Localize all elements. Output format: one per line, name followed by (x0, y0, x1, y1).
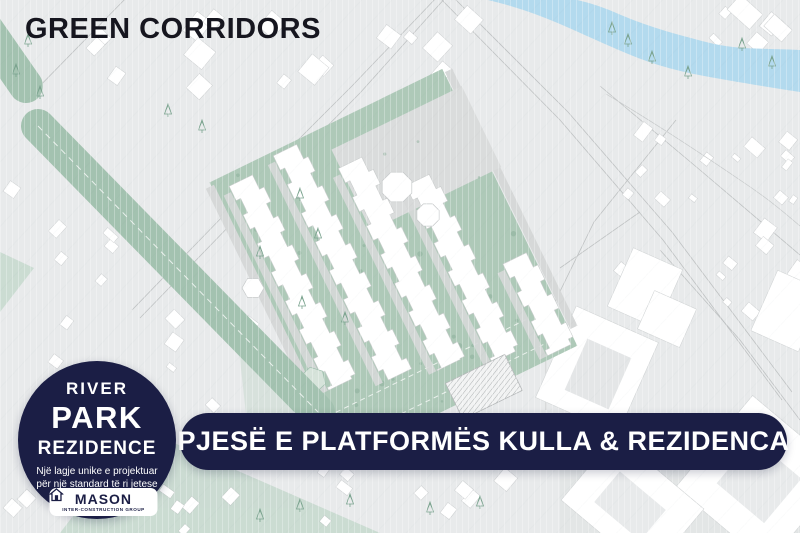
river-park-badge: RIVER PARK REZIDENCE Një lagje unike e p… (18, 361, 176, 519)
poster-canvas: GREEN CORRIDORS RIVER PARK REZIDENCE Një… (0, 0, 800, 533)
platform-banner-label: PJESË E PLATFORMËS KULLA & REZIDENCA (177, 426, 789, 457)
badge-text-stack: RIVER PARK REZIDENCE Një lagje unike e p… (18, 361, 176, 491)
mason-logo-name: MASON (75, 493, 132, 506)
platform-banner: PJESË E PLATFORMËS KULLA & REZIDENCA (180, 413, 787, 470)
mason-logo-house-icon (49, 488, 63, 502)
badge-brand-top: RIVER (18, 380, 176, 397)
mason-logo-row: MASON (75, 493, 132, 506)
badge-brand-main: PARK (18, 402, 176, 433)
mason-logo-subtitle: INTER-CONSTRUCTION GROUP (62, 507, 144, 512)
mason-logo: MASON INTER-CONSTRUCTION GROUP (49, 488, 157, 516)
badge-brand-sub: REZIDENCE (18, 439, 176, 458)
badge-tagline-line1: Një lagje unike e projektuar (18, 465, 176, 478)
page-title: GREEN CORRIDORS (25, 13, 321, 46)
